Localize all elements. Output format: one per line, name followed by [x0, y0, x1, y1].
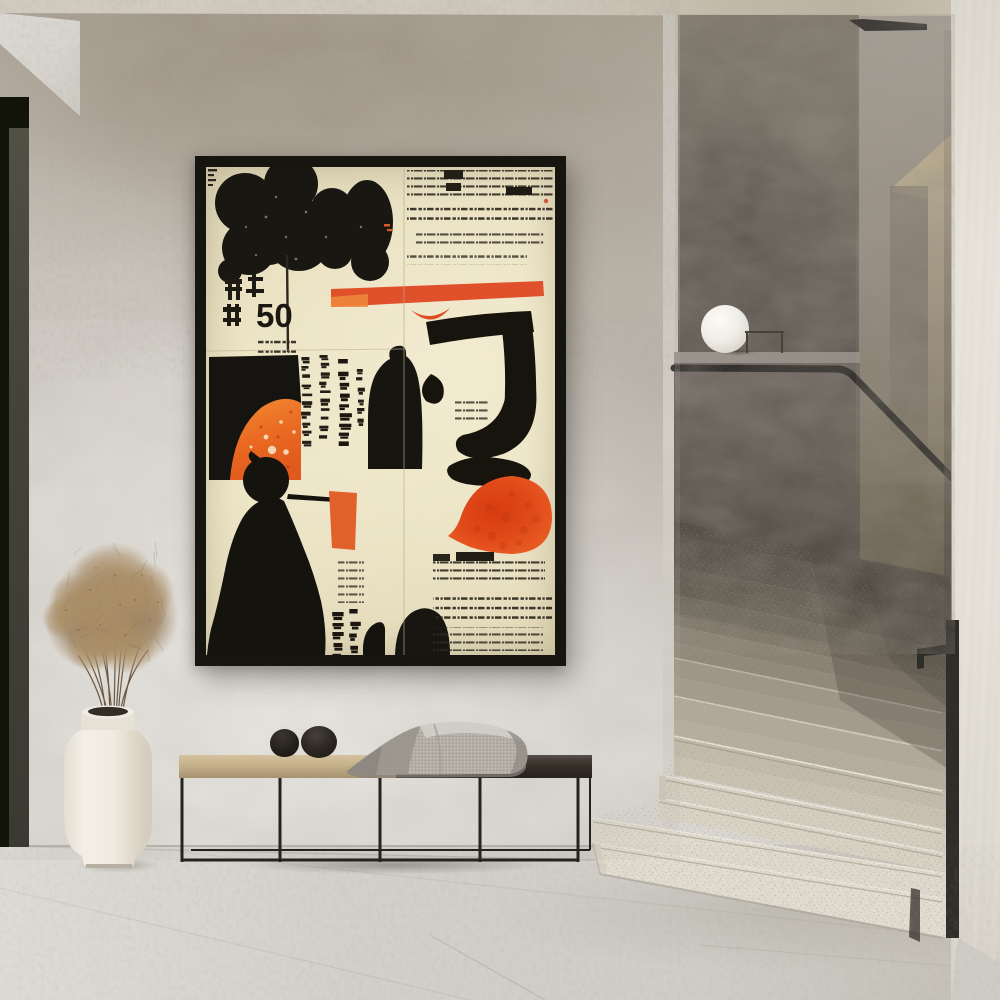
svg-text:50: 50: [256, 297, 293, 334]
